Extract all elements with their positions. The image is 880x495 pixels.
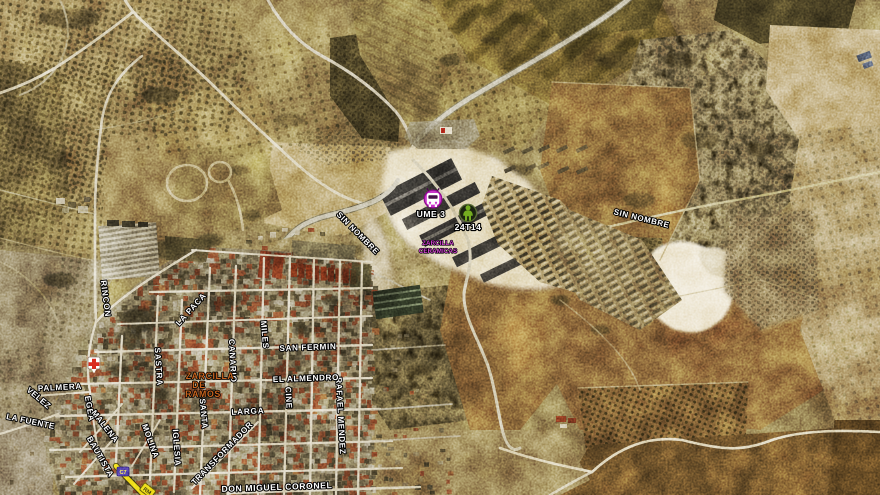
svg-text:LARGA: LARGA	[231, 406, 265, 417]
svg-text:24T14: 24T14	[455, 222, 482, 232]
svg-text:UME 3: UME 3	[417, 209, 446, 219]
svg-text:RAMOS: RAMOS	[185, 389, 221, 399]
svg-text:CINE: CINE	[283, 387, 293, 409]
svg-text:ZARCILLA: ZARCILLA	[422, 240, 454, 247]
svg-text:CERAMICAS: CERAMICAS	[419, 248, 457, 255]
